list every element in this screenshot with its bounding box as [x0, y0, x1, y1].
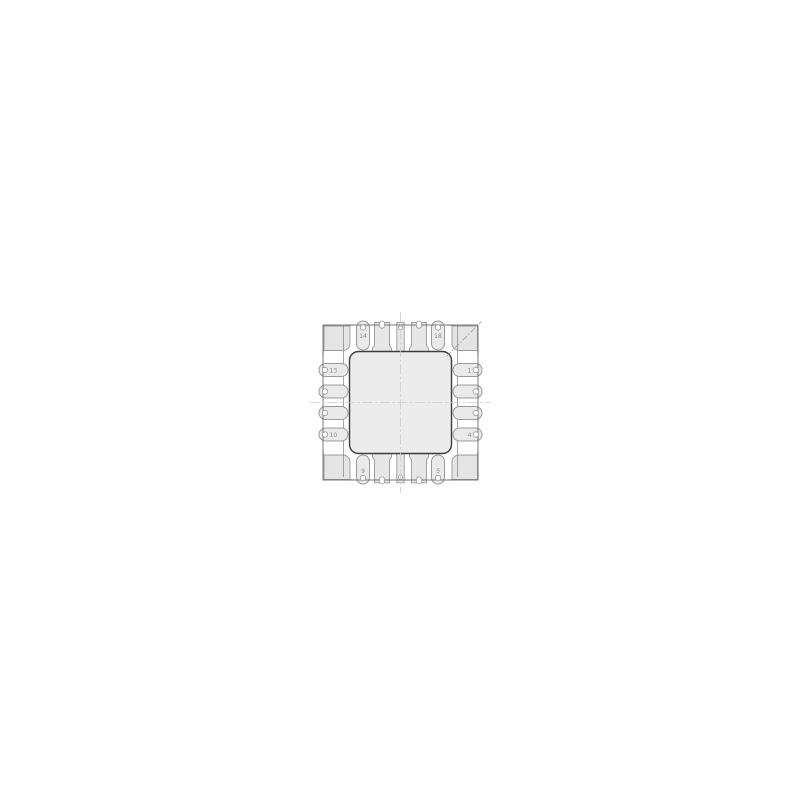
pin-5-index-circle: [435, 475, 440, 480]
pin-label-1: 1: [468, 367, 472, 374]
pin-10-index-circle: [322, 432, 327, 437]
pin-8-notch: [379, 477, 384, 484]
pin-label-4: 4: [468, 432, 472, 439]
pin-13-index-circle: [322, 367, 327, 372]
pin-6-notch: [416, 477, 421, 484]
qfn-package-drawing: 13 10 1 4 14 18 9 5: [0, 0, 800, 800]
pin-label-10: 10: [330, 432, 338, 439]
pin-9-index-circle: [360, 475, 365, 480]
corner-pad-bottom-right: [452, 455, 478, 480]
pin-1-index-circle: [473, 367, 478, 372]
pin-label-13: 13: [330, 367, 338, 374]
pin-4-index-circle: [473, 432, 478, 437]
pin-12-index-circle: [322, 389, 327, 394]
pin-15-notch: [379, 321, 384, 328]
pin-label-5: 5: [436, 468, 440, 475]
pin-2-index-circle: [473, 389, 478, 394]
pin-14-index-circle: [360, 325, 365, 330]
pin-18-index-circle: [435, 325, 440, 330]
corner-pad-top-left: [324, 326, 350, 351]
page-canvas: 13 10 1 4 14 18 9 5: [0, 0, 800, 800]
pin-17-notch: [416, 321, 421, 328]
pin-11-index-circle: [322, 410, 327, 415]
pin-label-18: 18: [434, 333, 442, 340]
corner-pad-bottom-left: [324, 455, 350, 480]
pin-label-9: 9: [361, 468, 365, 475]
pin-label-14: 14: [359, 333, 367, 340]
pin-3-index-circle: [473, 410, 478, 415]
